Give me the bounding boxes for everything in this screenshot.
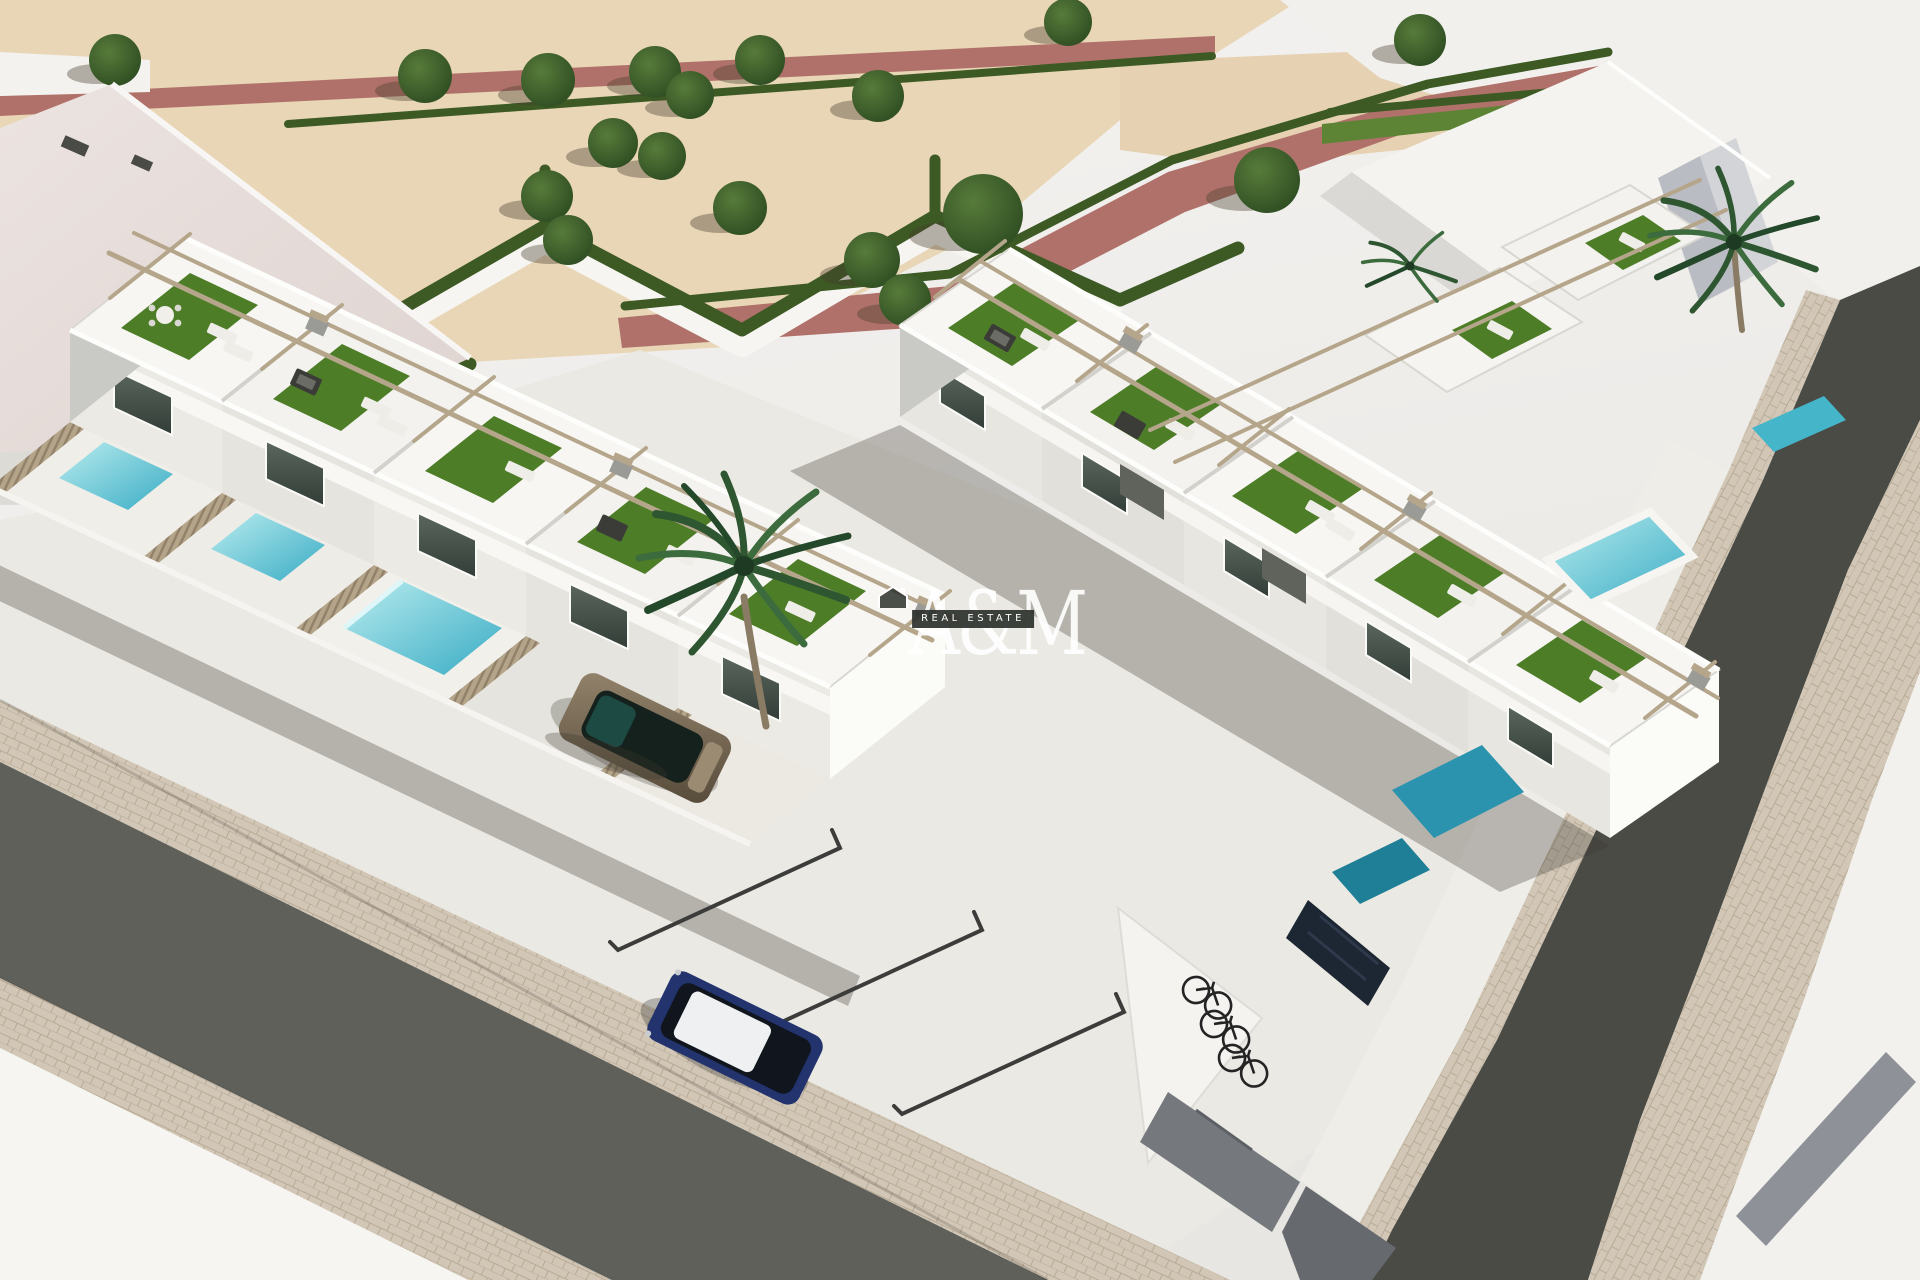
render-canvas: A&M REAL ESTATE [0, 0, 1920, 1280]
dining-table [156, 306, 174, 324]
scene [0, 0, 1920, 1280]
